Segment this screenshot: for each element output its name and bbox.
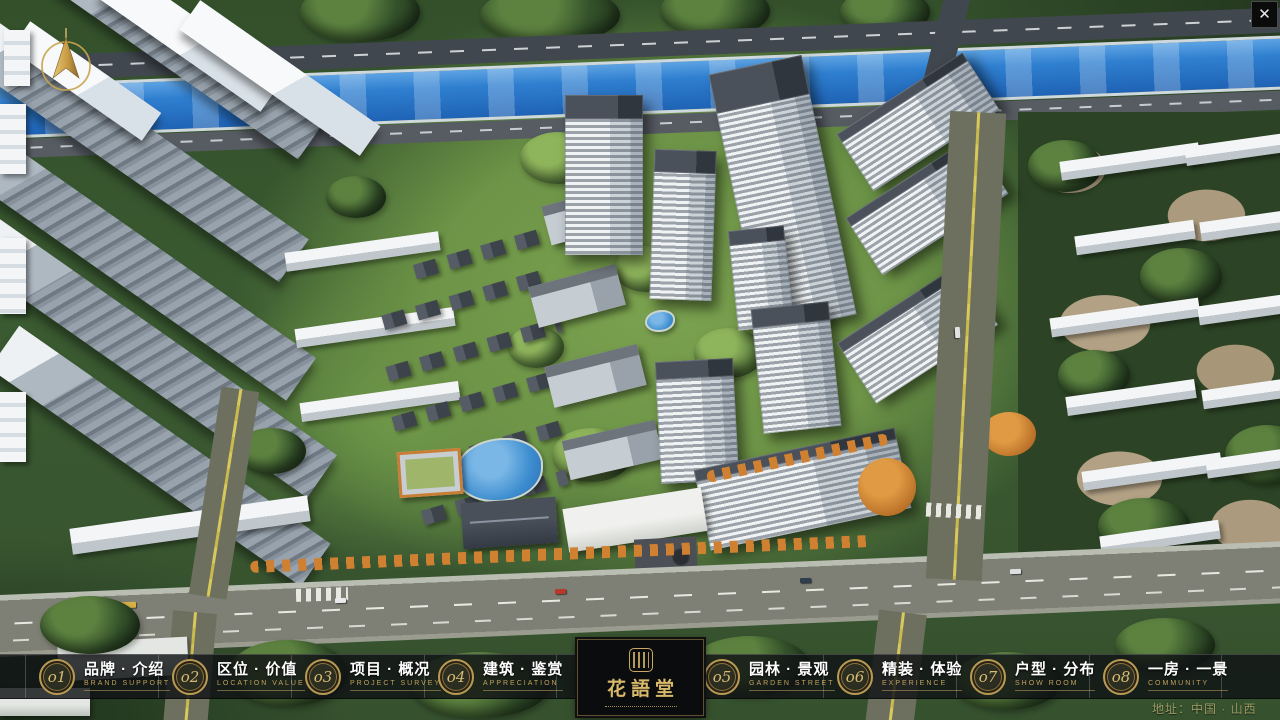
orange-tree-cluster bbox=[858, 458, 916, 516]
nav-item-project-survey[interactable]: o3 项目 · 概况 PROJECT SURVEY bbox=[291, 655, 424, 698]
nav-item-room-view[interactable]: o8 一房 · 一景 COMMUNITY bbox=[1089, 655, 1222, 698]
tree-cluster bbox=[40, 596, 140, 654]
logo-seal-icon bbox=[629, 648, 653, 672]
nav-number: o1 bbox=[48, 668, 67, 686]
nav-number-badge: o4 bbox=[438, 659, 474, 695]
nav-number: o3 bbox=[314, 668, 333, 686]
nav-title-en: GARDEN STREET bbox=[749, 680, 835, 691]
nav-title-zh: 建筑 · 鉴赏 bbox=[483, 662, 563, 679]
residential-tower bbox=[751, 301, 842, 433]
rooftop-structure bbox=[0, 238, 26, 314]
project-address: 地址：中国 · 山西 bbox=[1152, 700, 1257, 717]
rooftop-structure bbox=[0, 104, 26, 174]
nav-number-badge: o5 bbox=[704, 659, 740, 695]
nav-number: o8 bbox=[1112, 668, 1131, 686]
nav-number: o5 bbox=[713, 668, 732, 686]
vehicle bbox=[955, 327, 961, 338]
vehicle bbox=[1010, 569, 1021, 574]
compass-icon bbox=[33, 26, 99, 98]
tree-cluster bbox=[300, 0, 420, 42]
nav-number: o6 bbox=[846, 668, 865, 686]
rooftop-structure bbox=[0, 392, 26, 462]
kindergarten-building bbox=[396, 448, 463, 498]
nav-item-architecture[interactable]: o4 建筑 · 鉴赏 APPRECIATION bbox=[424, 655, 557, 698]
nav-title-zh: 精装 · 体验 bbox=[882, 662, 962, 679]
nav-number-badge: o1 bbox=[39, 659, 75, 695]
residential-tower bbox=[649, 149, 716, 301]
crosswalk bbox=[926, 502, 985, 519]
vehicle bbox=[335, 598, 346, 603]
nav-number: o7 bbox=[979, 668, 998, 686]
nav-number-badge: o6 bbox=[837, 659, 873, 695]
nav-number: o2 bbox=[181, 668, 200, 686]
masterplan-3d-view[interactable] bbox=[0, 0, 1280, 720]
clubhouse-building bbox=[461, 497, 559, 550]
nav-number: o4 bbox=[447, 668, 466, 686]
nav-title-zh: 园林 · 景观 bbox=[749, 662, 835, 679]
nav-number-badge: o3 bbox=[305, 659, 341, 695]
logo-subtitle-line bbox=[605, 703, 677, 707]
nav-number-badge: o7 bbox=[970, 659, 1006, 695]
nav-item-location-value[interactable]: o2 区位 · 价值 LOCATION VALUE bbox=[158, 655, 291, 698]
nav-item-garden-landscape[interactable]: o5 园林 · 景观 GARDEN STREET bbox=[690, 655, 823, 698]
nav-item-decor-experience[interactable]: o6 精装 · 体验 EXPERIENCE bbox=[823, 655, 956, 698]
nav-title-zh: 一房 · 一景 bbox=[1148, 662, 1228, 679]
nav-item-floorplan[interactable]: o7 户型 · 分布 SHOW ROOM bbox=[956, 655, 1089, 698]
close-button[interactable]: ✕ bbox=[1251, 1, 1278, 28]
nav-number-badge: o8 bbox=[1103, 659, 1139, 695]
nav-title-en: EXPERIENCE bbox=[882, 680, 962, 691]
nav-title-zh: 户型 · 分布 bbox=[1015, 662, 1095, 679]
residential-tower bbox=[565, 95, 643, 255]
app-window: ✕ o1 品牌 · 介绍 BRAND SUPPORT o2 区位 · 价值 LO… bbox=[0, 0, 1280, 720]
nav-title-en: COMMUNITY bbox=[1148, 680, 1228, 691]
project-logo[interactable]: 花語堂 bbox=[577, 639, 704, 716]
nav-title-en: SHOW ROOM bbox=[1015, 680, 1095, 691]
nav-title-en: APPRECIATION bbox=[483, 680, 563, 691]
tree-cluster bbox=[326, 176, 386, 218]
nav-number-badge: o2 bbox=[172, 659, 208, 695]
nav-item-brand-intro[interactable]: o1 品牌 · 介绍 BRAND SUPPORT bbox=[25, 655, 158, 698]
landscape-pond bbox=[645, 310, 675, 332]
logo-title: 花語堂 bbox=[602, 674, 679, 701]
rooftop-structure bbox=[4, 30, 30, 86]
villa-row bbox=[381, 269, 549, 330]
tree-cluster bbox=[1140, 248, 1222, 304]
vehicle bbox=[555, 589, 566, 594]
vehicle bbox=[800, 578, 811, 583]
